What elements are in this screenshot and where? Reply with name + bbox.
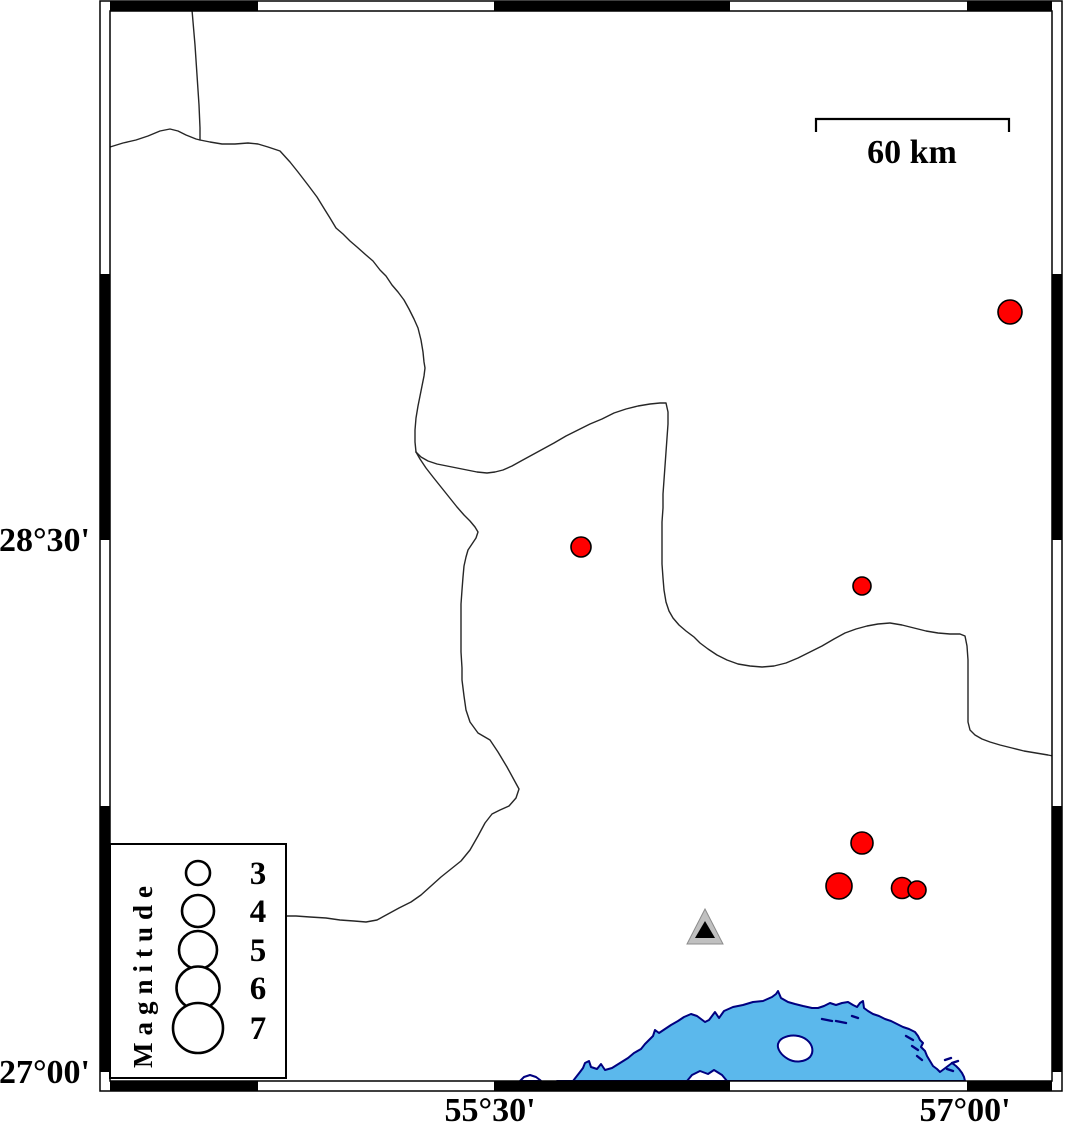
frame-segment-right (1052, 806, 1062, 1072)
frame-segment-left (100, 806, 110, 1072)
frame-segment-top (494, 1, 730, 11)
legend-label-m3: 3 (250, 856, 267, 892)
longitude-label: 57°00' (919, 1092, 1010, 1129)
earthquake-marker (571, 537, 591, 557)
legend-label-m4: 4 (250, 894, 267, 930)
earthquake-marker (851, 832, 873, 854)
legend-circle-m3 (186, 861, 210, 885)
earthquake-marker (998, 300, 1022, 324)
latitude-label: 28°30' (0, 522, 90, 559)
magnitude-legend: Magnitude 34567 (110, 844, 286, 1078)
legend-circle-m4 (182, 895, 214, 927)
frame-segment-bottom (110, 1081, 258, 1091)
longitude-label: 55°30' (444, 1092, 535, 1129)
frame-segment-bottom (494, 1081, 730, 1091)
earthquake-marker (826, 873, 852, 899)
legend-title: Magnitude (128, 879, 158, 1068)
frame-segment-bottom (967, 1081, 1052, 1091)
legend-circle-m7 (173, 1003, 223, 1053)
legend-label-m5: 5 (250, 933, 267, 969)
frame-segment-top (110, 1, 258, 11)
frame-segment-right (1052, 274, 1062, 540)
frame-segment-top (967, 1, 1052, 11)
earthquake-marker (908, 881, 926, 899)
seismicity-map-page: 60 km Magnitude 34567 28°30'27°00'55°30'… (0, 0, 1066, 1129)
map-canvas: 60 km Magnitude 34567 28°30'27°00'55°30'… (0, 0, 1066, 1129)
latitude-label: 27°00' (0, 1054, 90, 1091)
scale-bar-label: 60 km (867, 134, 957, 171)
legend-label-m7: 7 (250, 1011, 267, 1047)
legend-label-m6: 6 (250, 971, 267, 1007)
frame-segment-left (100, 274, 110, 540)
legend-circle-m5 (179, 931, 217, 969)
earthquake-marker (853, 577, 871, 595)
